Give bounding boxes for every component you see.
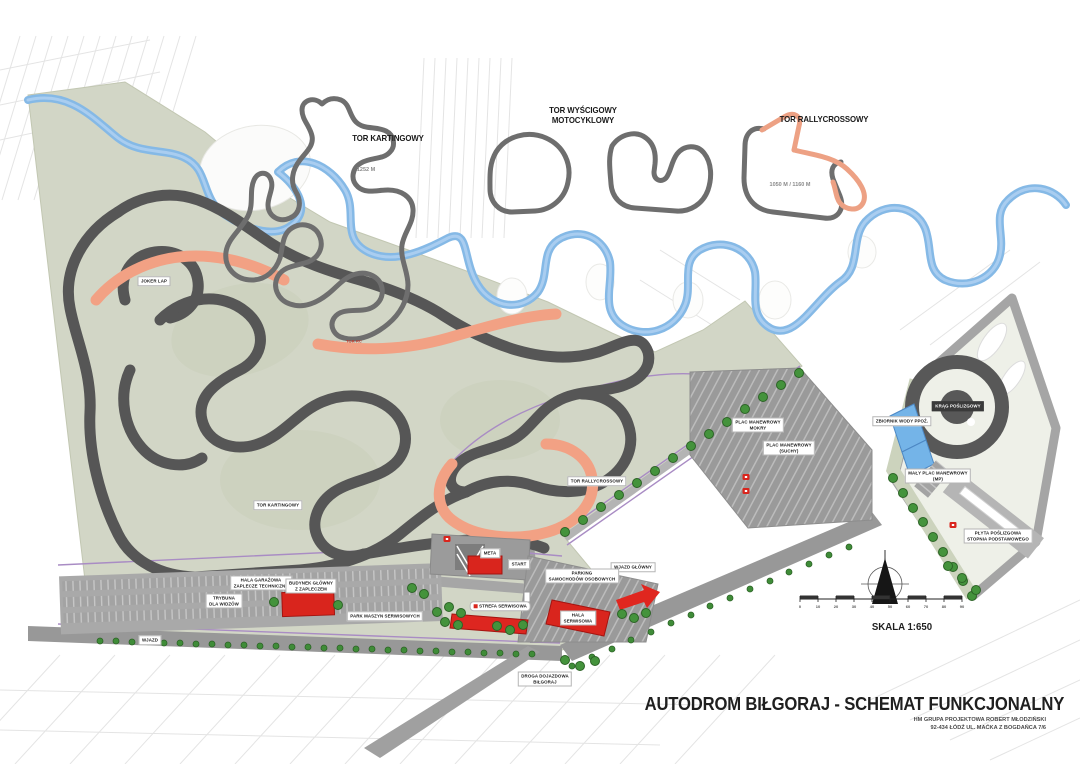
- sheet-company-block: HM GRUPA PROJEKTOWA ROBERT MŁODZIŃSKI 92…: [914, 716, 1046, 732]
- inset-motorcycle-title: TOR WYŚCIGOWY MOTOCYKLOWY: [549, 106, 617, 126]
- label-line: TRYBUNA: [209, 596, 239, 602]
- company-name: HM GRUPA PROJEKTOWA ROBERT MŁODZIŃSKI: [914, 716, 1046, 724]
- label-budynek-glowny: BUDYNEK GŁÓWNY Z ZAPLECZEM: [285, 579, 336, 594]
- sheet-title: AUTODROM BIŁGORAJ - SCHEMAT FUNKCJONALNY: [644, 693, 1064, 715]
- label-line: HALA GARAŻOWA: [234, 578, 289, 584]
- label-line: DROGA DOJAZDOWA: [521, 674, 568, 680]
- label-line: DLA WIDZÓW: [209, 601, 239, 607]
- scale-tick: 70: [924, 604, 928, 609]
- label-line: PLAC MANEWROWY: [735, 420, 780, 426]
- label-tor-kartingowy: TOR KARTINGOWY: [253, 500, 302, 510]
- company-address: 92-434 ŁÓDŹ UL. MAĆKA Z BOGDAŃCA 7/6: [914, 724, 1046, 732]
- inset-motorcycle-title-line1: TOR WYŚCIGOWY: [549, 105, 617, 115]
- scale-tick: 20: [834, 604, 838, 609]
- label-line: PŁYTA POŚLIZGOWA: [967, 531, 1029, 537]
- label-plac-manewrowy-mokry: PLAC MANEWROWY MOKRY: [732, 418, 784, 433]
- scale-tick: 90: [960, 604, 964, 609]
- label-tor-rc: TOR RC: [344, 338, 365, 345]
- label-maly-plac: MAŁY PLAC MANEWROWY (MP): [905, 469, 971, 484]
- scale-tick: 80: [942, 604, 946, 609]
- label-line: (SUCHY): [766, 448, 811, 454]
- label-line: (MP): [908, 476, 967, 482]
- label-line: SERWISOWA: [564, 618, 593, 624]
- label-wjazd-boczny: WJAZD: [138, 635, 161, 645]
- label-plyta-poslizgowa: PŁYTA POŚLIZGOWA STOPNIA PODSTAWOWEGO: [964, 529, 1033, 544]
- label-meta: META: [480, 548, 500, 558]
- site-plan-drawing: [0, 0, 1080, 764]
- label-krag-poslizgowy: KRĄG POŚLIZGOWY: [932, 401, 984, 411]
- label-plac-manewrowy-suchy: PLAC MANEWROWY (SUCHY): [763, 441, 815, 456]
- site-plan-sheet: 0 10 20 30 40 50 60 70 80 90 TOR KARTING…: [0, 0, 1080, 764]
- label-hala-serwisowa: HALA SERWISOWA: [560, 611, 596, 626]
- scale-tick: 0: [799, 604, 801, 609]
- label-park-maszyn: PARK MASZYN SERWISOWYCH: [347, 611, 423, 621]
- label-line: ZAPLECZE TECHNICZNE: [234, 583, 289, 589]
- inset-rallycross-outline: [744, 114, 864, 218]
- label-line: PLAC MANEWROWY: [766, 443, 811, 449]
- label-line: STOPNIA PODSTAWOWEGO: [967, 536, 1029, 542]
- label-line: BUDYNEK GŁÓWNY: [289, 581, 333, 587]
- label-droga-dojazdowa: DROGA DOJAZDOWA BIŁGORAJ: [518, 672, 572, 687]
- red-square-icon: [473, 604, 477, 608]
- label-joker-lap: JOKER LAP: [137, 276, 170, 286]
- inset-rallycross-title: TOR RALLYCROSSOWY: [780, 115, 869, 125]
- skid-training-site: [890, 298, 1056, 596]
- scale-tick: 60: [906, 604, 910, 609]
- label-line: MOKRY: [735, 425, 780, 431]
- label-tor-rallycrossowy: TOR RALLYCROSSOWY: [567, 476, 626, 486]
- label-line: STREFA SERWISOWA: [479, 603, 527, 609]
- label-line: SAMOCHODÓW OSOBOWYCH: [549, 576, 616, 582]
- inset-rallycross-length: 1050 M / 1160 M: [770, 182, 811, 188]
- inset-karting-title: TOR KARTINGOWY: [352, 134, 424, 144]
- scale-tick: 30: [852, 604, 856, 609]
- label-parking: PARKING SAMOCHODÓW OSOBOWYCH: [545, 569, 619, 584]
- label-zbiornik-wody: ZBIORNIK WODY PPOŻ.: [872, 416, 931, 426]
- scale-tick: 10: [816, 604, 820, 609]
- scale-label: SKALA 1:650: [872, 621, 932, 633]
- label-strefa-serwisowa: STREFA SERWISOWA: [470, 601, 531, 611]
- scale-tick: 40: [870, 604, 874, 609]
- label-trybuna: TRYBUNA DLA WIDZÓW: [206, 594, 243, 609]
- inset-karting-length: 1252 M: [357, 167, 375, 173]
- label-start: START: [508, 559, 530, 569]
- scale-tick: 50: [888, 604, 892, 609]
- label-line: MAŁY PLAC MANEWROWY: [908, 471, 967, 477]
- main-building: [282, 591, 335, 617]
- label-line: BIŁGORAJ: [521, 679, 568, 685]
- label-hala-garazowa: HALA GARAŻOWA ZAPLECZE TECHNICZNE: [230, 576, 292, 591]
- inset-motorcycle-outline: [490, 134, 711, 212]
- inset-motorcycle-title-line2: MOTOCYKLOWY: [552, 115, 614, 125]
- label-line: Z ZAPLECZEM: [289, 586, 333, 592]
